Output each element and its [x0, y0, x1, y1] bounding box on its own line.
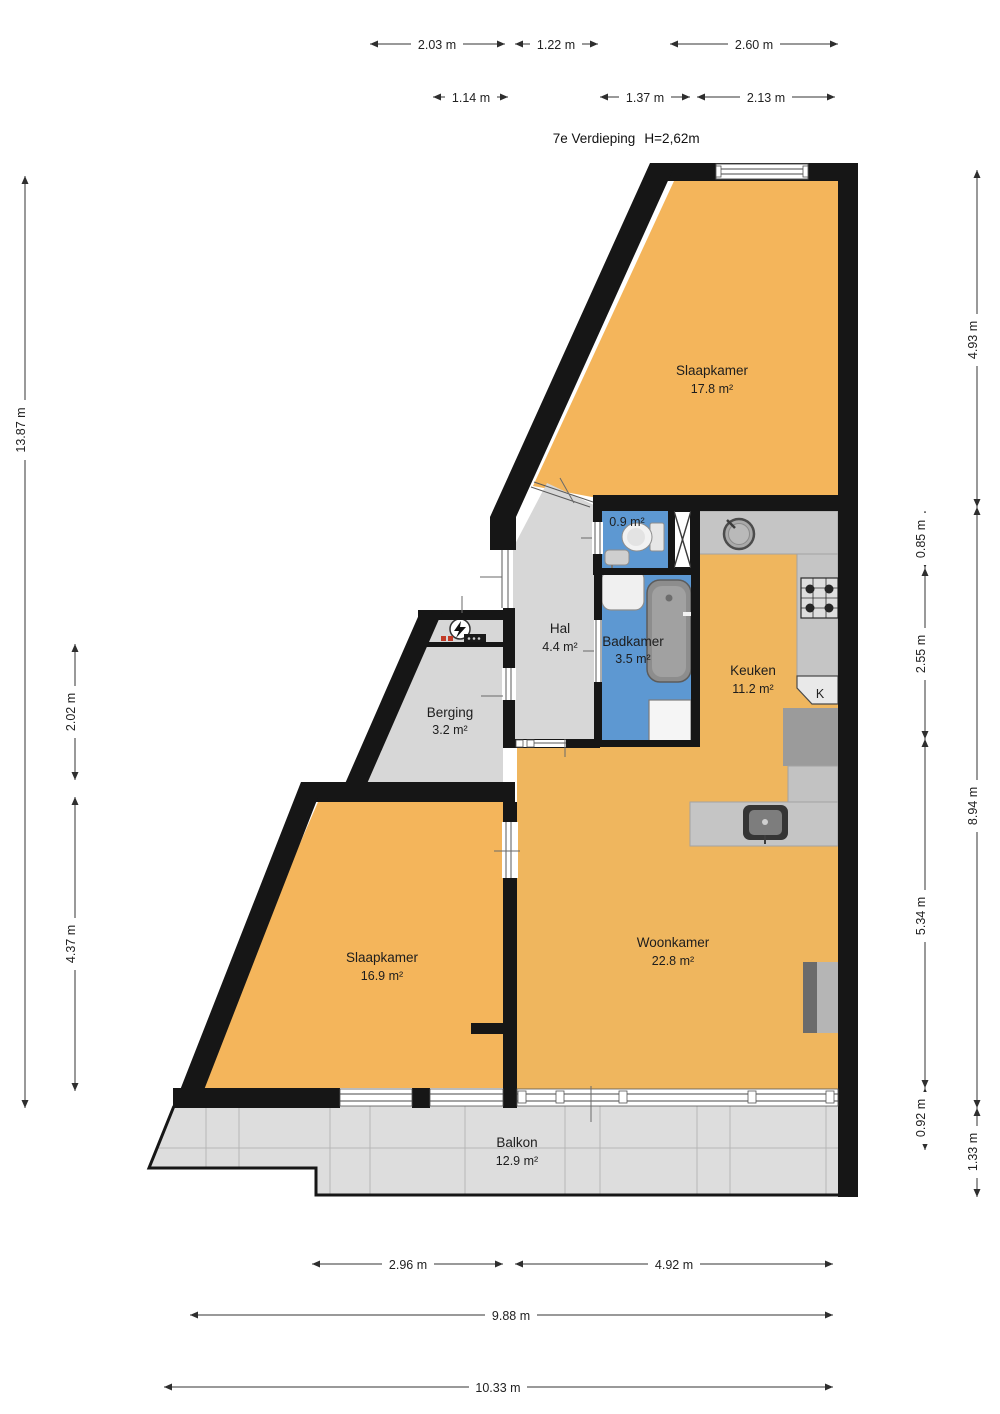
- area-balkon: 12.9 m²: [496, 1154, 538, 1168]
- corner-sink: [605, 550, 629, 565]
- label-badkamer: Badkamer: [602, 634, 664, 649]
- dim-right-outer-c: 1.33 m: [966, 1108, 985, 1197]
- svg-text:2.96 m: 2.96 m: [389, 1258, 427, 1272]
- area-slaapkamer-2: 16.9 m²: [361, 969, 403, 983]
- hob: [801, 578, 838, 618]
- area-berging: 3.2 m²: [432, 723, 467, 737]
- area-keuken: 11.2 m²: [732, 682, 773, 696]
- window-slaapkamer-2-left: [340, 1089, 412, 1106]
- svg-text:9.88 m: 9.88 m: [492, 1309, 530, 1323]
- counter-block: [788, 766, 838, 802]
- label-keuken: Keuken: [730, 663, 776, 678]
- label-berging: Berging: [427, 705, 474, 720]
- svg-text:0.85 m: 0.85 m: [914, 520, 928, 558]
- dim-top1-a: 2.03 m: [370, 36, 505, 52]
- floorplan-page: K: [0, 0, 1000, 1414]
- counter-top: [699, 511, 838, 554]
- wall-badkamer-top: [593, 568, 699, 575]
- dim-right-inner-a: 0.85 m: [914, 511, 933, 568]
- dim-top1-c: 2.60 m: [670, 36, 838, 52]
- svg-text:4.92 m: 4.92 m: [655, 1258, 693, 1272]
- svg-text:2.55 m: 2.55 m: [914, 635, 928, 673]
- dim-top2-b: 1.37 m: [600, 89, 690, 105]
- dim-right-inner-c: 5.34 m: [914, 739, 933, 1088]
- washing-machine: [649, 700, 691, 742]
- wall-keuken-left: [691, 511, 700, 747]
- dim-top2-a: 1.14 m: [433, 89, 508, 105]
- wall-badkamer-left-lower: [594, 682, 602, 740]
- floor-title: 7e Verdieping: [553, 131, 636, 146]
- svg-text:1.22 m: 1.22 m: [537, 38, 575, 52]
- dim-top1-b: 1.22 m: [515, 36, 598, 52]
- svg-text:10.33 m: 10.33 m: [475, 1381, 520, 1395]
- wall-entry-chunk: [490, 517, 516, 550]
- svg-text:0.92 m: 0.92 m: [914, 1099, 928, 1137]
- area-woonkamer: 22.8 m²: [652, 954, 694, 968]
- washbasin: [602, 570, 644, 610]
- area-hal: 4.4 m²: [542, 640, 577, 654]
- wall-bottom-left: [173, 1088, 340, 1108]
- wall-interior-stub: [471, 1023, 507, 1034]
- dim-left-inner-a: 2.02 m: [64, 644, 83, 780]
- wall-bottom-stub: [503, 1088, 517, 1108]
- svg-text:4.93 m: 4.93 m: [966, 321, 980, 359]
- svg-text:1.14 m: 1.14 m: [452, 91, 490, 105]
- svg-text:13.87 m: 13.87 m: [14, 407, 28, 452]
- room-balkon-floor: [149, 1106, 845, 1195]
- wall-meter-inner: [421, 642, 508, 647]
- boiler-closet-label: K: [816, 687, 825, 701]
- floorplan-svg: K: [0, 0, 1000, 1414]
- sliding-door-woonkamer: [517, 1089, 838, 1106]
- area-badkamer: 3.5 m²: [615, 652, 650, 666]
- radiator: [803, 962, 838, 1033]
- wall-right: [838, 163, 858, 1197]
- room-hal-floor: [513, 483, 594, 740]
- wall-bed1-bottom: [593, 495, 838, 511]
- dim-right-outer-a: 4.93 m: [966, 170, 985, 507]
- wall-bottom-pillar: [412, 1088, 430, 1108]
- wall-divider-upper: [503, 802, 517, 822]
- dim-left-inner-b: 4.37 m: [64, 797, 83, 1091]
- kitchen-block: [783, 708, 838, 766]
- label-slaapkamer-2: Slaapkamer: [346, 950, 419, 965]
- wall-badkamer-left-upper: [594, 575, 602, 620]
- dim-bottom-c: 9.88 m: [190, 1307, 833, 1323]
- svg-text:2.03 m: 2.03 m: [418, 38, 456, 52]
- wall-toilet-shaft: [668, 511, 674, 568]
- shaft: [674, 511, 691, 568]
- wall-divider-lower: [503, 878, 517, 1088]
- ceiling-height: H=2,62m: [644, 131, 699, 146]
- dim-bottom-d: 10.33 m: [164, 1379, 833, 1395]
- entrance-door: [480, 550, 508, 608]
- plan-title: 7e Verdieping H=2,62m: [553, 131, 700, 146]
- dim-bottom-a: 2.96 m: [312, 1256, 503, 1272]
- svg-text:2.60 m: 2.60 m: [735, 38, 773, 52]
- wall-hal-left-lower: [503, 700, 515, 740]
- window-top: [716, 164, 808, 179]
- wall-badkamer-bottom: [594, 740, 699, 747]
- area-slaapkamer-1: 17.8 m²: [691, 382, 733, 396]
- meter-red-mark-2: [448, 636, 453, 641]
- wall-bed2-top: [301, 782, 515, 802]
- dim-left-outer: 13.87 m: [14, 176, 33, 1108]
- meter-red-mark-1: [441, 636, 446, 641]
- kitchen-square-sink-drain: [762, 819, 768, 825]
- kitchen-round-sink-basin: [729, 524, 750, 545]
- dim-bottom-b: 4.92 m: [515, 1256, 833, 1272]
- svg-text:2.02 m: 2.02 m: [64, 693, 78, 731]
- dim-right-outer-b: 8.94 m: [966, 507, 985, 1108]
- bathtub: [647, 580, 692, 682]
- dim-right-inner-d: 0.92 m: [914, 1088, 933, 1150]
- svg-text:5.34 m: 5.34 m: [914, 897, 928, 935]
- window-slaapkamer-2-right: [430, 1089, 503, 1106]
- svg-text:4.37 m: 4.37 m: [64, 925, 78, 963]
- dim-right-inner-b: 2.55 m: [914, 568, 933, 739]
- svg-text:1.33 m: 1.33 m: [966, 1133, 980, 1171]
- area-toilet: 0.9 m²: [609, 515, 644, 529]
- svg-text:2.13 m: 2.13 m: [747, 91, 785, 105]
- svg-text:8.94 m: 8.94 m: [966, 787, 980, 825]
- label-balkon: Balkon: [496, 1135, 537, 1150]
- dim-top2-c: 2.13 m: [697, 89, 835, 105]
- label-woonkamer: Woonkamer: [637, 935, 710, 950]
- label-slaapkamer-1: Slaapkamer: [676, 363, 749, 378]
- svg-text:1.37 m: 1.37 m: [626, 91, 664, 105]
- label-hal: Hal: [550, 621, 570, 636]
